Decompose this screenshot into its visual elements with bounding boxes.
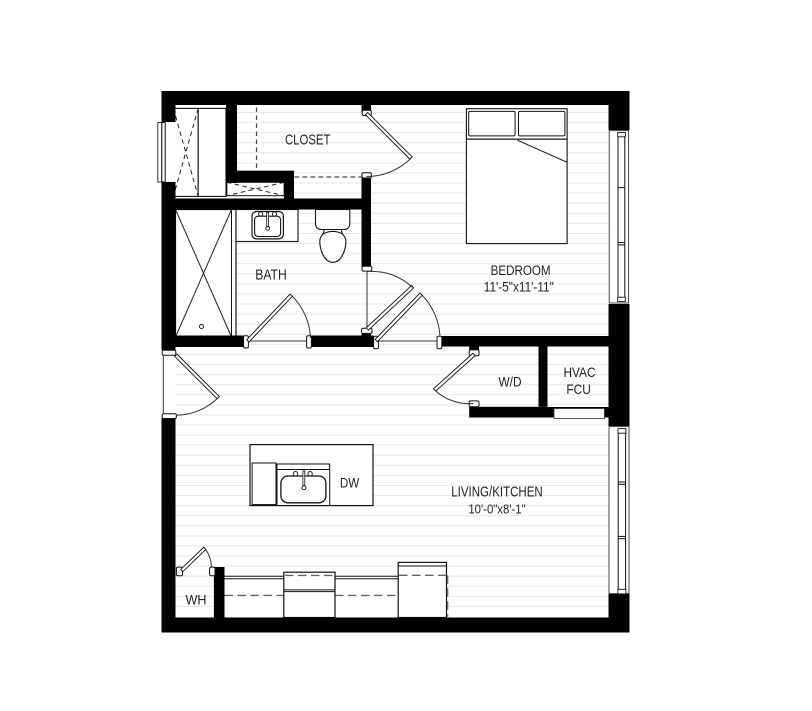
svg-text:10'-0"x8'-1": 10'-0"x8'-1" <box>468 501 526 516</box>
svg-text:BEDROOM: BEDROOM <box>491 263 551 278</box>
svg-text:DW: DW <box>340 475 360 491</box>
svg-text:LIVING/KITCHEN: LIVING/KITCHEN <box>451 484 543 500</box>
svg-text:W/D: W/D <box>499 374 522 390</box>
svg-text:11'-5"x11'-11": 11'-5"x11'-11" <box>484 280 554 295</box>
svg-text:BATH: BATH <box>255 267 287 284</box>
svg-text:HVAC: HVAC <box>564 364 596 380</box>
svg-text:FCU: FCU <box>566 381 591 397</box>
svg-text:CLOSET: CLOSET <box>285 131 331 148</box>
svg-text:WH: WH <box>186 592 207 608</box>
